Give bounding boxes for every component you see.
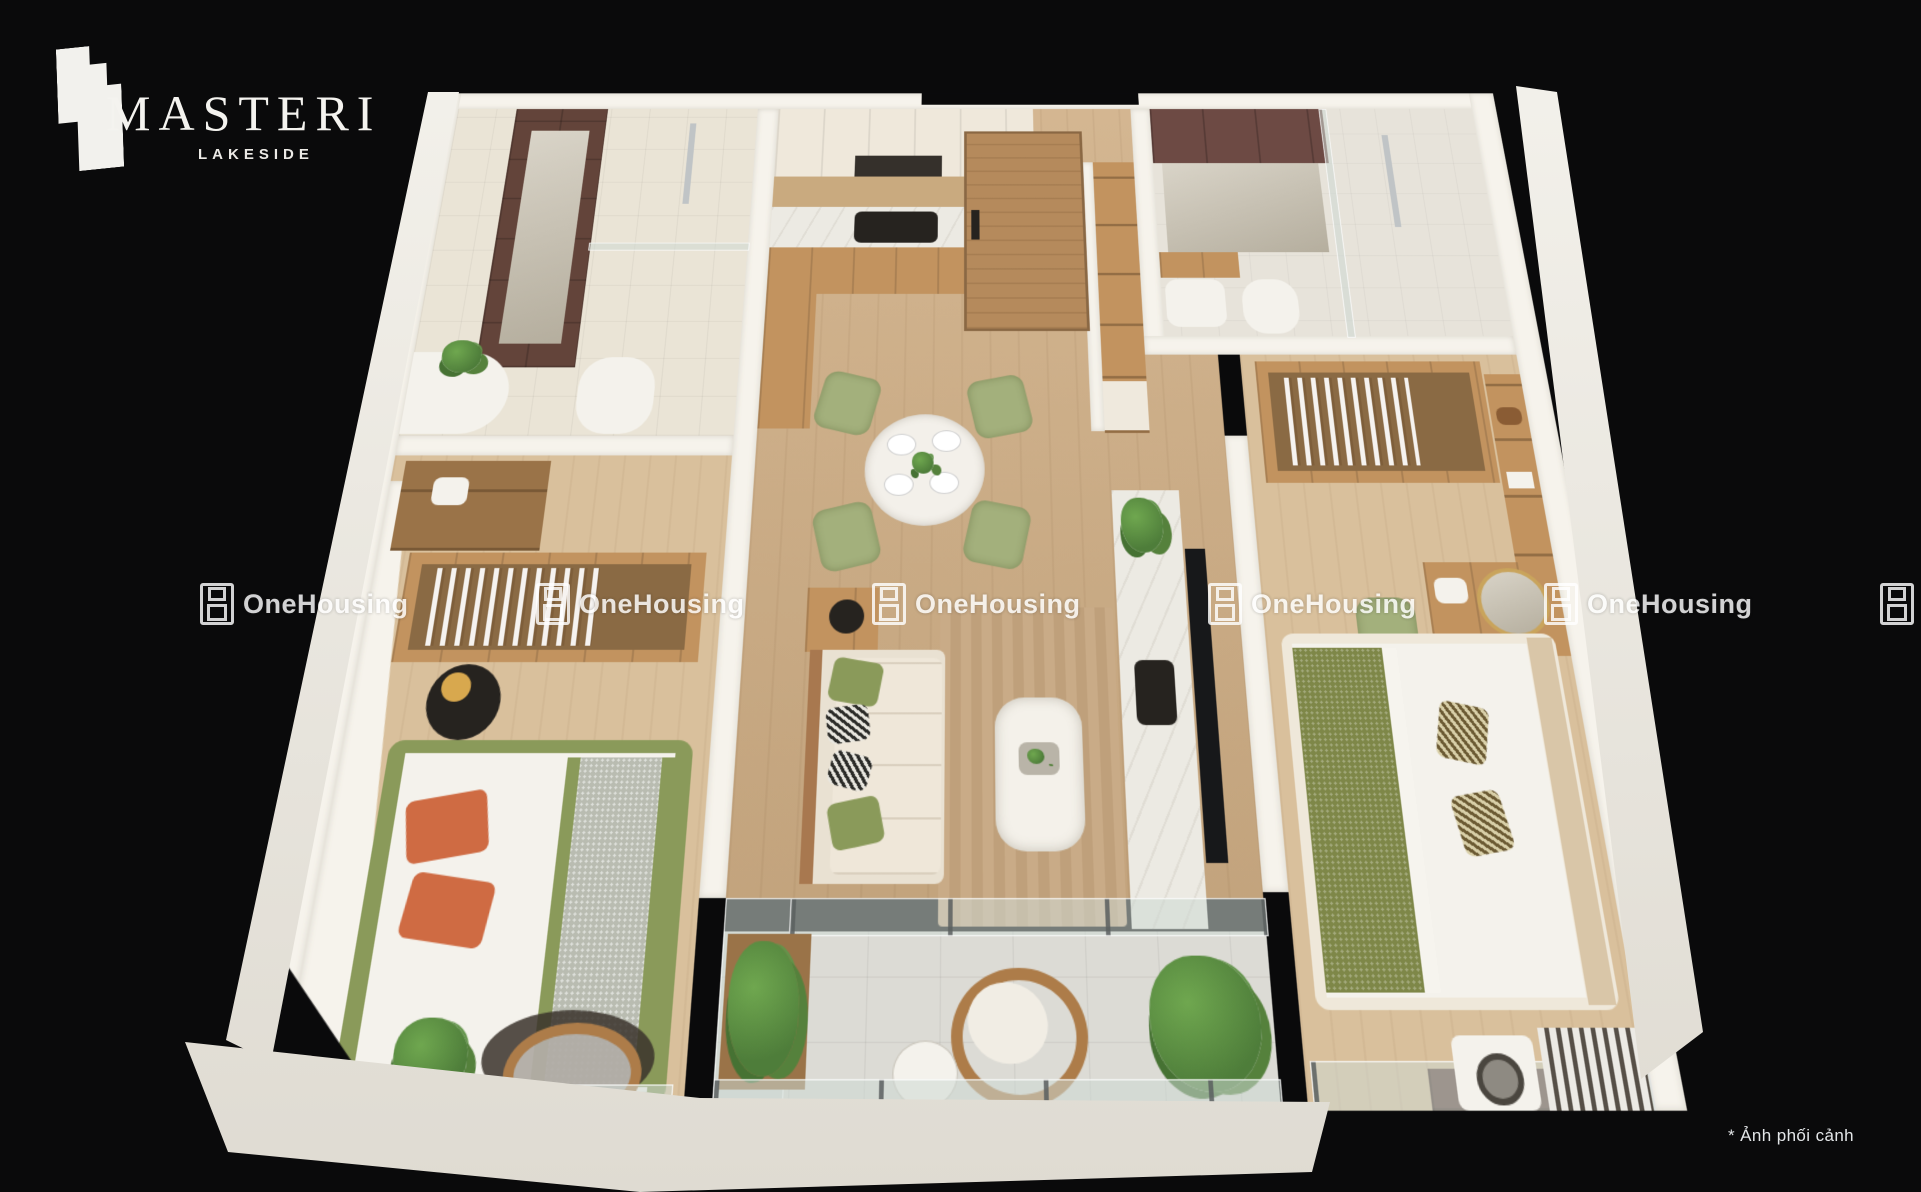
render-disclaimer: * Ảnh phối cảnh: [1728, 1126, 1854, 1146]
shower-glass-panel: [588, 243, 750, 251]
cooktop: [854, 212, 938, 243]
sofa-pillow-pattern: [825, 703, 871, 745]
wall-bath2-south: [1144, 336, 1516, 355]
onehousing-logo-icon: [200, 583, 234, 625]
entry-door-handle: [971, 210, 979, 240]
brand-logo: MASTERI LAKESIDE: [58, 44, 358, 184]
coffee-table-plant: [1027, 749, 1044, 764]
render-scene: MASTERI LAKESIDE OneHousing OneHousing O…: [0, 0, 1921, 1192]
watermark: OneHousing: [1208, 583, 1417, 625]
onehousing-logo-icon: [1880, 583, 1914, 625]
shelf-handbag: [430, 477, 470, 505]
brand-subtitle: LAKESIDE: [198, 146, 314, 163]
bath2-cabinet-wall: [1150, 109, 1329, 163]
bath2-vanity-counter: [1159, 252, 1240, 278]
entry-bench: [1103, 381, 1150, 430]
wall-entry-notch: [922, 93, 1139, 104]
watermark-label: OneHousing: [915, 589, 1081, 620]
console-decor: [1134, 660, 1178, 725]
dining-plate: [929, 472, 959, 494]
entry-door: [967, 134, 1087, 329]
watermark-label: OneHousing: [1251, 589, 1417, 620]
balcony-sliding-doors: [789, 898, 1269, 936]
onehousing-logo-icon: [1544, 583, 1578, 625]
master-shelf-unit: [390, 461, 551, 551]
brand-name: MASTERI: [106, 84, 381, 142]
bed1-pillow-terracotta: [396, 871, 497, 949]
onehousing-logo-icon: [872, 583, 906, 625]
sofa-pillow-green: [826, 656, 884, 708]
watermark-label: OneHousing: [243, 589, 409, 620]
watermark: OneHousing: [872, 583, 1081, 625]
watermark: OneHousing: [1880, 583, 1921, 625]
watermark-label: OneHousing: [579, 589, 745, 620]
range-hood: [854, 156, 942, 177]
niche-box: [1506, 472, 1535, 489]
dining-chair-se: [961, 498, 1033, 571]
onehousing-logo-icon: [536, 583, 570, 625]
wall-master-bath-south: [395, 436, 733, 456]
bed2-accent-pillow: [1436, 699, 1489, 766]
desk-items: [1433, 578, 1469, 604]
bath2-toilet: [1240, 279, 1302, 333]
watermark: OneHousing: [1544, 583, 1753, 625]
wardrobe2-clothes: [1284, 378, 1421, 466]
watermark: OneHousing: [200, 583, 409, 625]
onehousing-logo-icon: [1208, 583, 1242, 625]
niche-basket: [1495, 407, 1523, 425]
dining-centerpiece: [912, 452, 934, 474]
bath2-sink: [1165, 279, 1228, 327]
bath2-mirror: [1162, 163, 1329, 252]
watermark: OneHousing: [536, 583, 745, 625]
dining-plate: [932, 430, 961, 452]
watermark-label: OneHousing: [1587, 589, 1753, 620]
